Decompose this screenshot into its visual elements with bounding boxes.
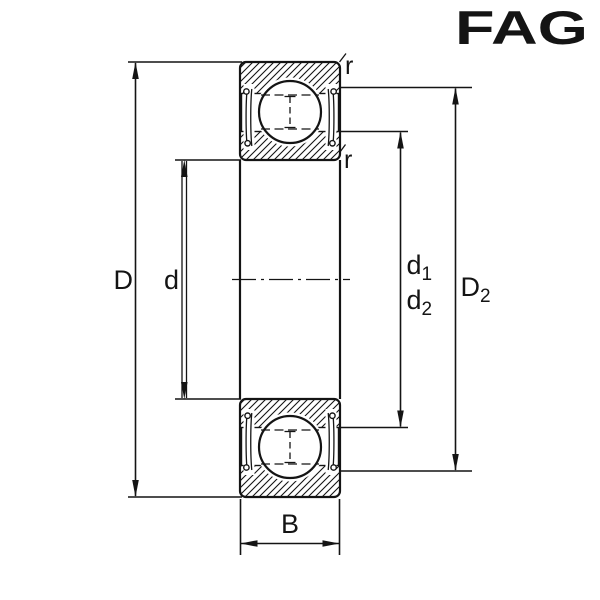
bottom-right-shield-curl-outer bbox=[331, 465, 336, 470]
bottom-right-shield-curl-inner bbox=[330, 413, 335, 418]
label-chamfer-bottom: r bbox=[344, 146, 352, 174]
dimension-d1-d2: d1 d2 bbox=[340, 132, 432, 428]
top-left-shield-curl-inner bbox=[245, 141, 250, 146]
top-right-shield-curl-outer bbox=[331, 89, 336, 94]
D2-arrow-up bbox=[452, 88, 459, 105]
label-d2: d2 bbox=[407, 285, 433, 320]
label-chamfer-top: r bbox=[345, 52, 353, 80]
label-d2-sub: 2 bbox=[422, 299, 433, 320]
label-width: B bbox=[281, 509, 299, 539]
bottom-left-shield-curl-outer bbox=[244, 465, 249, 470]
label-D2-base: D bbox=[461, 272, 481, 302]
d1-arrow-up bbox=[397, 132, 404, 149]
label-outer-diameter: D bbox=[114, 265, 134, 295]
dimension-d: d bbox=[164, 160, 241, 399]
bottom-left-shield-curl-inner bbox=[245, 413, 250, 418]
bearing-bottom-section bbox=[240, 399, 340, 497]
label-D2: D2 bbox=[461, 272, 491, 307]
d1-arrow-down bbox=[397, 411, 404, 428]
B-arrow-right bbox=[323, 540, 340, 547]
top-left-shield-curl-outer bbox=[244, 89, 249, 94]
dimension-B: B bbox=[241, 499, 340, 555]
label-d2-base: d bbox=[407, 285, 422, 315]
label-d1-sub: 1 bbox=[422, 264, 433, 285]
label-d1: d1 bbox=[407, 250, 433, 285]
label-d1-base: d bbox=[407, 250, 422, 280]
D-arrow-down bbox=[132, 480, 139, 497]
label-D2-sub: 2 bbox=[480, 286, 491, 307]
D2-arrow-down bbox=[452, 454, 459, 471]
bearing-dimension-drawing: D d d1 d2 D2 B r bbox=[0, 0, 600, 600]
top-right-shield-curl-inner bbox=[330, 141, 335, 146]
drawing-canvas: D d d1 d2 D2 B r bbox=[0, 0, 600, 600]
fag-logo: FAG bbox=[455, 1, 588, 54]
chamfer-annotations: r r bbox=[340, 52, 354, 174]
B-arrow-left bbox=[241, 540, 258, 547]
label-bore-diameter: d bbox=[164, 265, 179, 295]
bearing-top-section bbox=[240, 62, 340, 160]
D-arrow-up bbox=[132, 62, 139, 79]
